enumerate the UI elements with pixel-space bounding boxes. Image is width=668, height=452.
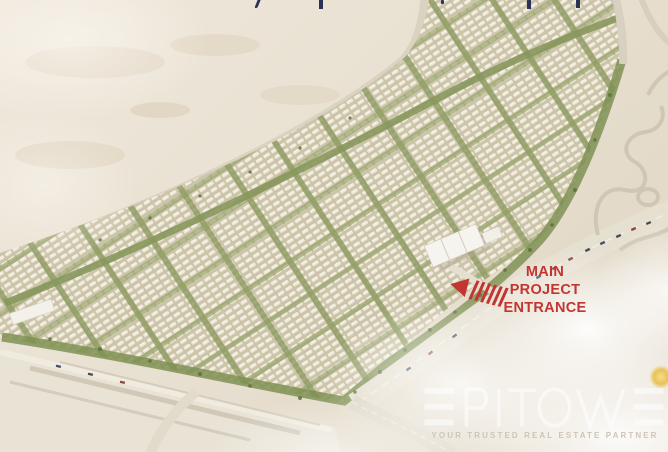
entrance-label-line: MAIN <box>486 263 604 281</box>
sun-glow-dot <box>649 365 668 389</box>
masterplan-aerial-rendering <box>0 0 668 452</box>
cropped-letter-fragment <box>319 0 323 9</box>
masterplan-screenshot: MAIN PROJECT ENTRANCE YOUR <box>0 0 668 452</box>
northeast-corner-roads <box>616 0 668 64</box>
main-project-entrance-label: MAIN PROJECT ENTRANCE <box>486 263 604 317</box>
cropped-letter-fragment <box>441 0 444 4</box>
entrance-label-line: ENTRANCE <box>486 299 604 317</box>
cropped-letter-fragment <box>527 0 531 9</box>
entrance-label-line: PROJECT <box>486 281 604 299</box>
cropped-letter-fragment <box>576 0 580 8</box>
